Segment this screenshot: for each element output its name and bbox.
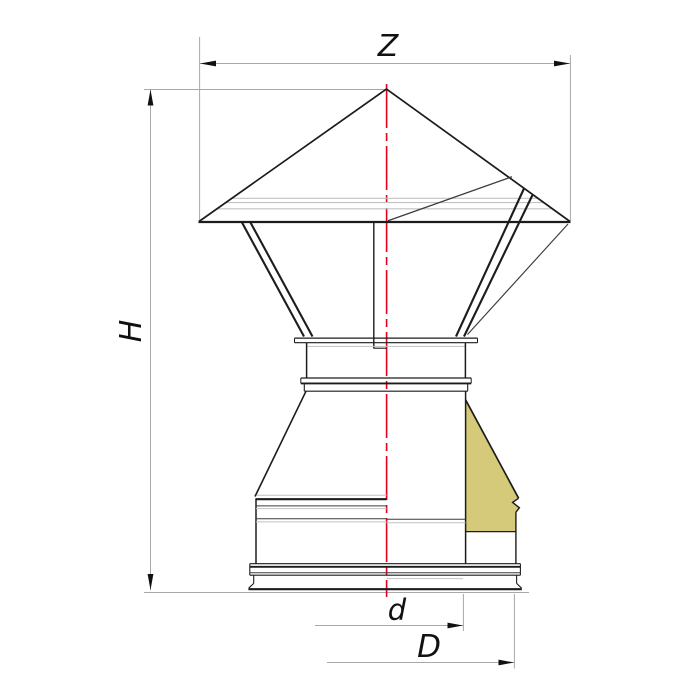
dimension-d-label: d [388,593,407,627]
dimension-D-label: D [417,629,441,665]
arrow-right-icon [448,623,464,629]
drawing-canvas: Z H [0,0,700,700]
dimension-D: D [327,594,514,669]
arrow-down-icon [148,574,154,590]
arrow-right-icon [499,660,515,666]
dimension-z: Z [200,29,571,221]
dimension-z-label: Z [377,29,400,64]
center-mast [374,222,387,349]
umbrella-cap [199,89,571,222]
arrow-left-icon [200,61,216,67]
dimension-d: d [315,593,463,631]
base-flange [248,564,521,590]
support-leg-right [456,189,568,337]
chimney-cap-technical-drawing: Z H [0,0,700,700]
arrow-right-icon [554,61,570,67]
arrow-up-icon [148,90,154,106]
support-leg-left [242,223,313,337]
insulation-cutaway [466,401,520,532]
base-cylinder [256,499,466,563]
dimension-h-label: H [114,320,149,343]
